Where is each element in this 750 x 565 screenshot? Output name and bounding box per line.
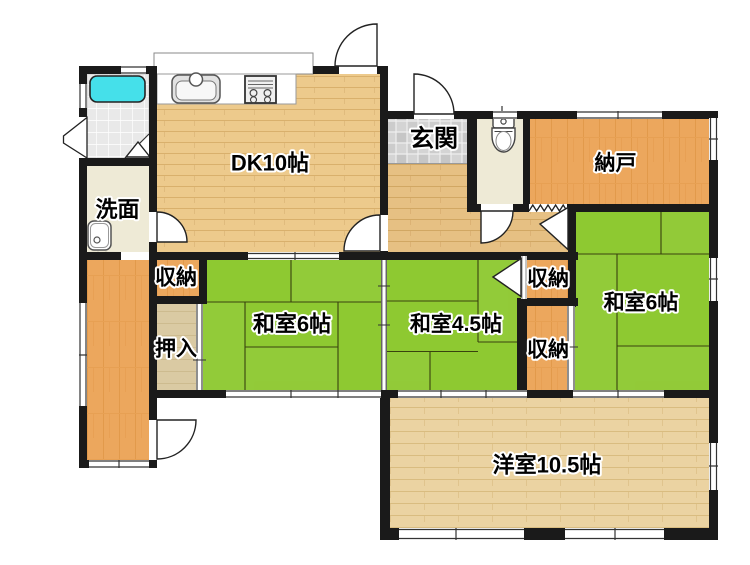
svg-text:和室4.5帖: 和室4.5帖 xyxy=(410,312,502,336)
svg-text:洗面: 洗面 xyxy=(95,197,139,222)
svg-text:和室6帖: 和室6帖 xyxy=(253,312,331,337)
svg-text:DK10帖: DK10帖 xyxy=(231,151,309,176)
svg-text:納戸: 納戸 xyxy=(595,151,637,175)
svg-text:玄関: 玄関 xyxy=(410,125,458,153)
svg-text:和室6帖: 和室6帖 xyxy=(604,291,679,315)
svg-text:収納: 収納 xyxy=(527,338,569,362)
svg-text:洋室10.5帖: 洋室10.5帖 xyxy=(493,453,602,478)
svg-text:押入: 押入 xyxy=(155,337,197,361)
svg-text:収納: 収納 xyxy=(527,267,569,291)
svg-text:収納: 収納 xyxy=(155,266,197,290)
